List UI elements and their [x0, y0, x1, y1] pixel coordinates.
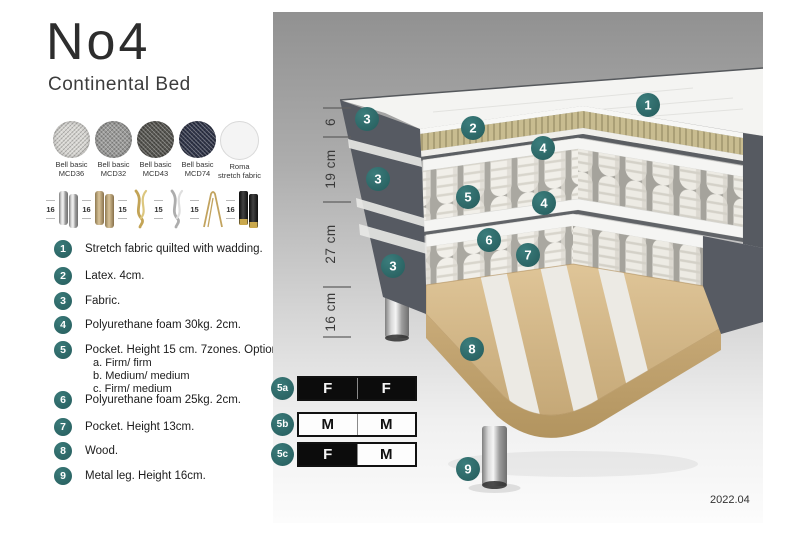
spec-text: Latex. 4cm. — [85, 270, 144, 282]
leg-cylinder-chrome-icon — [56, 188, 82, 230]
fabric-swatches: Bell basicMCD36 Bell basicMCD32 Bell bas… — [51, 121, 260, 180]
product-subtitle: Continental Bed — [48, 74, 191, 96]
callout-7-badge: 7 — [516, 243, 540, 267]
spec-item-7: 7 Pocket. Height 13cm. — [54, 418, 194, 436]
leg-option-cylinder-wood: 16 — [82, 185, 118, 233]
svg-text:8: 8 — [468, 342, 475, 357]
fabric-swatch: Bell basicMCD43 — [135, 121, 176, 180]
spec-text: Pocket. Height 13cm. — [85, 421, 194, 433]
svg-text:3: 3 — [374, 172, 381, 187]
firmness-badge: 5a — [271, 377, 294, 400]
callout-8-badge: 8 — [460, 337, 484, 361]
fabric-label: Romastretch fabric — [218, 163, 261, 180]
product-title: No4 — [46, 12, 150, 72]
spec-text: Fabric. — [85, 295, 120, 307]
svg-text:2: 2 — [469, 121, 476, 136]
catalog-version: 2022.04 — [710, 494, 750, 506]
spec-item-6: 6 Polyurethane foam 25kg. 2cm. — [54, 391, 241, 409]
firmness-bar: F M — [297, 442, 417, 467]
firmness-cell: F — [357, 378, 416, 399]
leg-options: 16 16 15 15 — [46, 185, 244, 233]
callout-6-badge: 6 — [477, 228, 501, 252]
fabric-label: Bell basicMCD74 — [181, 161, 213, 178]
dimension-label-16cm: 16 cm — [323, 292, 338, 331]
spec-number-badge: 9 — [54, 467, 72, 485]
spec-number-badge: 2 — [54, 267, 72, 285]
svg-text:3: 3 — [363, 112, 370, 127]
fabric-label: Bell basicMCD43 — [139, 161, 171, 178]
spec-item-3: 3 Fabric. — [54, 292, 120, 310]
spec-text: Polyurethane foam 25kg. 2cm. — [85, 394, 241, 406]
firmness-option-5c: 5c F M — [271, 442, 417, 467]
spec-text: Metal leg. Height 16cm. — [85, 470, 206, 482]
callout-4-badge: 4 — [532, 191, 556, 215]
firmness-badge: 5b — [271, 413, 294, 436]
spec-item-2: 2 Latex. 4cm. — [54, 267, 144, 285]
fabric-side-left — [340, 100, 427, 314]
spec-number-badge: 3 — [54, 292, 72, 310]
svg-text:4: 4 — [539, 141, 547, 156]
callout-5-badge: 5 — [456, 185, 480, 209]
spec-number-badge: 1 — [54, 240, 72, 258]
spec-option-b: b. Medium/ medium — [93, 370, 190, 383]
fabric-circle-roma — [220, 121, 259, 160]
leg-option-cylinder-black-gold: 16 — [226, 185, 262, 233]
spec-option-a: a. Firm/ firm — [93, 357, 190, 370]
leg-option-twisted-silver: 15 — [154, 185, 190, 233]
callout-4-badge: 4 — [531, 136, 555, 160]
fabric-side-right-upper — [743, 133, 763, 248]
svg-text:7: 7 — [524, 248, 531, 263]
dimension-label-top: 6 — [323, 118, 338, 126]
fabric-label: Bell basicMCD36 — [55, 161, 87, 178]
spec-text: Pocket. Height 15 cm. 7zones. Option: — [85, 344, 281, 356]
spec-text: Wood. — [85, 445, 118, 457]
firmness-cell: M — [357, 414, 416, 435]
leg-twisted-gold-icon — [128, 188, 154, 230]
svg-text:3: 3 — [389, 259, 396, 274]
spec-item-8: 8 Wood. — [54, 442, 118, 460]
spec-text: Polyurethane foam 30kg. 2cm. — [85, 319, 241, 331]
spec-number-badge: 4 — [54, 316, 72, 334]
fabric-swatch: Bell basicMCD36 — [51, 121, 92, 180]
callout-3-badge: 3 — [355, 107, 379, 131]
fabric-swatch: Bell basicMCD32 — [93, 121, 134, 180]
leg-cylinder-wood-icon — [92, 188, 118, 230]
firmness-cell: F — [299, 444, 357, 465]
leg-hairpin-icon — [200, 188, 226, 230]
leg-option-hairpin: 15 — [190, 185, 226, 233]
dimension-label-27cm: 27 cm — [323, 224, 338, 263]
callout-3-badge: 3 — [381, 254, 405, 278]
firmness-option-5a: 5a F F — [271, 376, 417, 401]
fabric-circle-mcd32 — [95, 121, 132, 158]
fabric-swatch: Romastretch fabric — [219, 121, 260, 180]
fabric-swatch: Bell basicMCD74 — [177, 121, 218, 180]
callout-9-badge: 9 — [456, 457, 480, 481]
spec-number-badge: 7 — [54, 418, 72, 436]
spec-item-1: 1 Stretch fabric quilted with wadding. — [54, 240, 263, 258]
spec-number-badge: 8 — [54, 442, 72, 460]
callout-3-badge: 3 — [366, 167, 390, 191]
spec-number-badge: 5 — [54, 341, 72, 359]
catalog-page: No4 Continental Bed Bell basicMCD36 Bell… — [0, 0, 800, 533]
spec-item-5-options: a. Firm/ firm b. Medium/ medium c. Firm/… — [93, 357, 190, 395]
spec-text: Stretch fabric quilted with wadding. — [85, 243, 263, 255]
spec-item-9: 9 Metal leg. Height 16cm. — [54, 467, 206, 485]
fabric-circle-mcd36 — [53, 121, 90, 158]
fabric-circle-mcd74 — [179, 121, 216, 158]
leg-twisted-silver-icon — [164, 188, 190, 230]
svg-text:1: 1 — [644, 98, 651, 113]
firmness-bar: F F — [297, 376, 417, 401]
leg-option-twisted-gold: 15 — [118, 185, 154, 233]
callout-1-badge: 1 — [636, 93, 660, 117]
leg-cylinder-black-gold-icon — [236, 188, 262, 230]
svg-text:6: 6 — [485, 233, 492, 248]
fabric-circle-mcd43 — [137, 121, 174, 158]
dimension-label-19cm: 19 cm — [323, 149, 338, 188]
leg-option-cylinder-chrome: 16 — [46, 185, 82, 233]
callout-2-badge: 2 — [461, 116, 485, 140]
svg-text:4: 4 — [540, 196, 548, 211]
firmness-cell: M — [357, 444, 416, 465]
firmness-option-5b: 5b M M — [271, 412, 417, 437]
svg-text:5: 5 — [464, 190, 471, 205]
spec-number-badge: 6 — [54, 391, 72, 409]
dimension-ruler: 6 19 cm 27 cm 16 cm — [323, 108, 351, 337]
firmness-cell: M — [299, 414, 357, 435]
spec-item-4: 4 Polyurethane foam 30kg. 2cm. — [54, 316, 241, 334]
firmness-cell: F — [299, 378, 357, 399]
svg-text:9: 9 — [464, 462, 471, 477]
fabric-label: Bell basicMCD32 — [97, 161, 129, 178]
firmness-badge: 5c — [271, 443, 294, 466]
firmness-bar: M M — [297, 412, 417, 437]
